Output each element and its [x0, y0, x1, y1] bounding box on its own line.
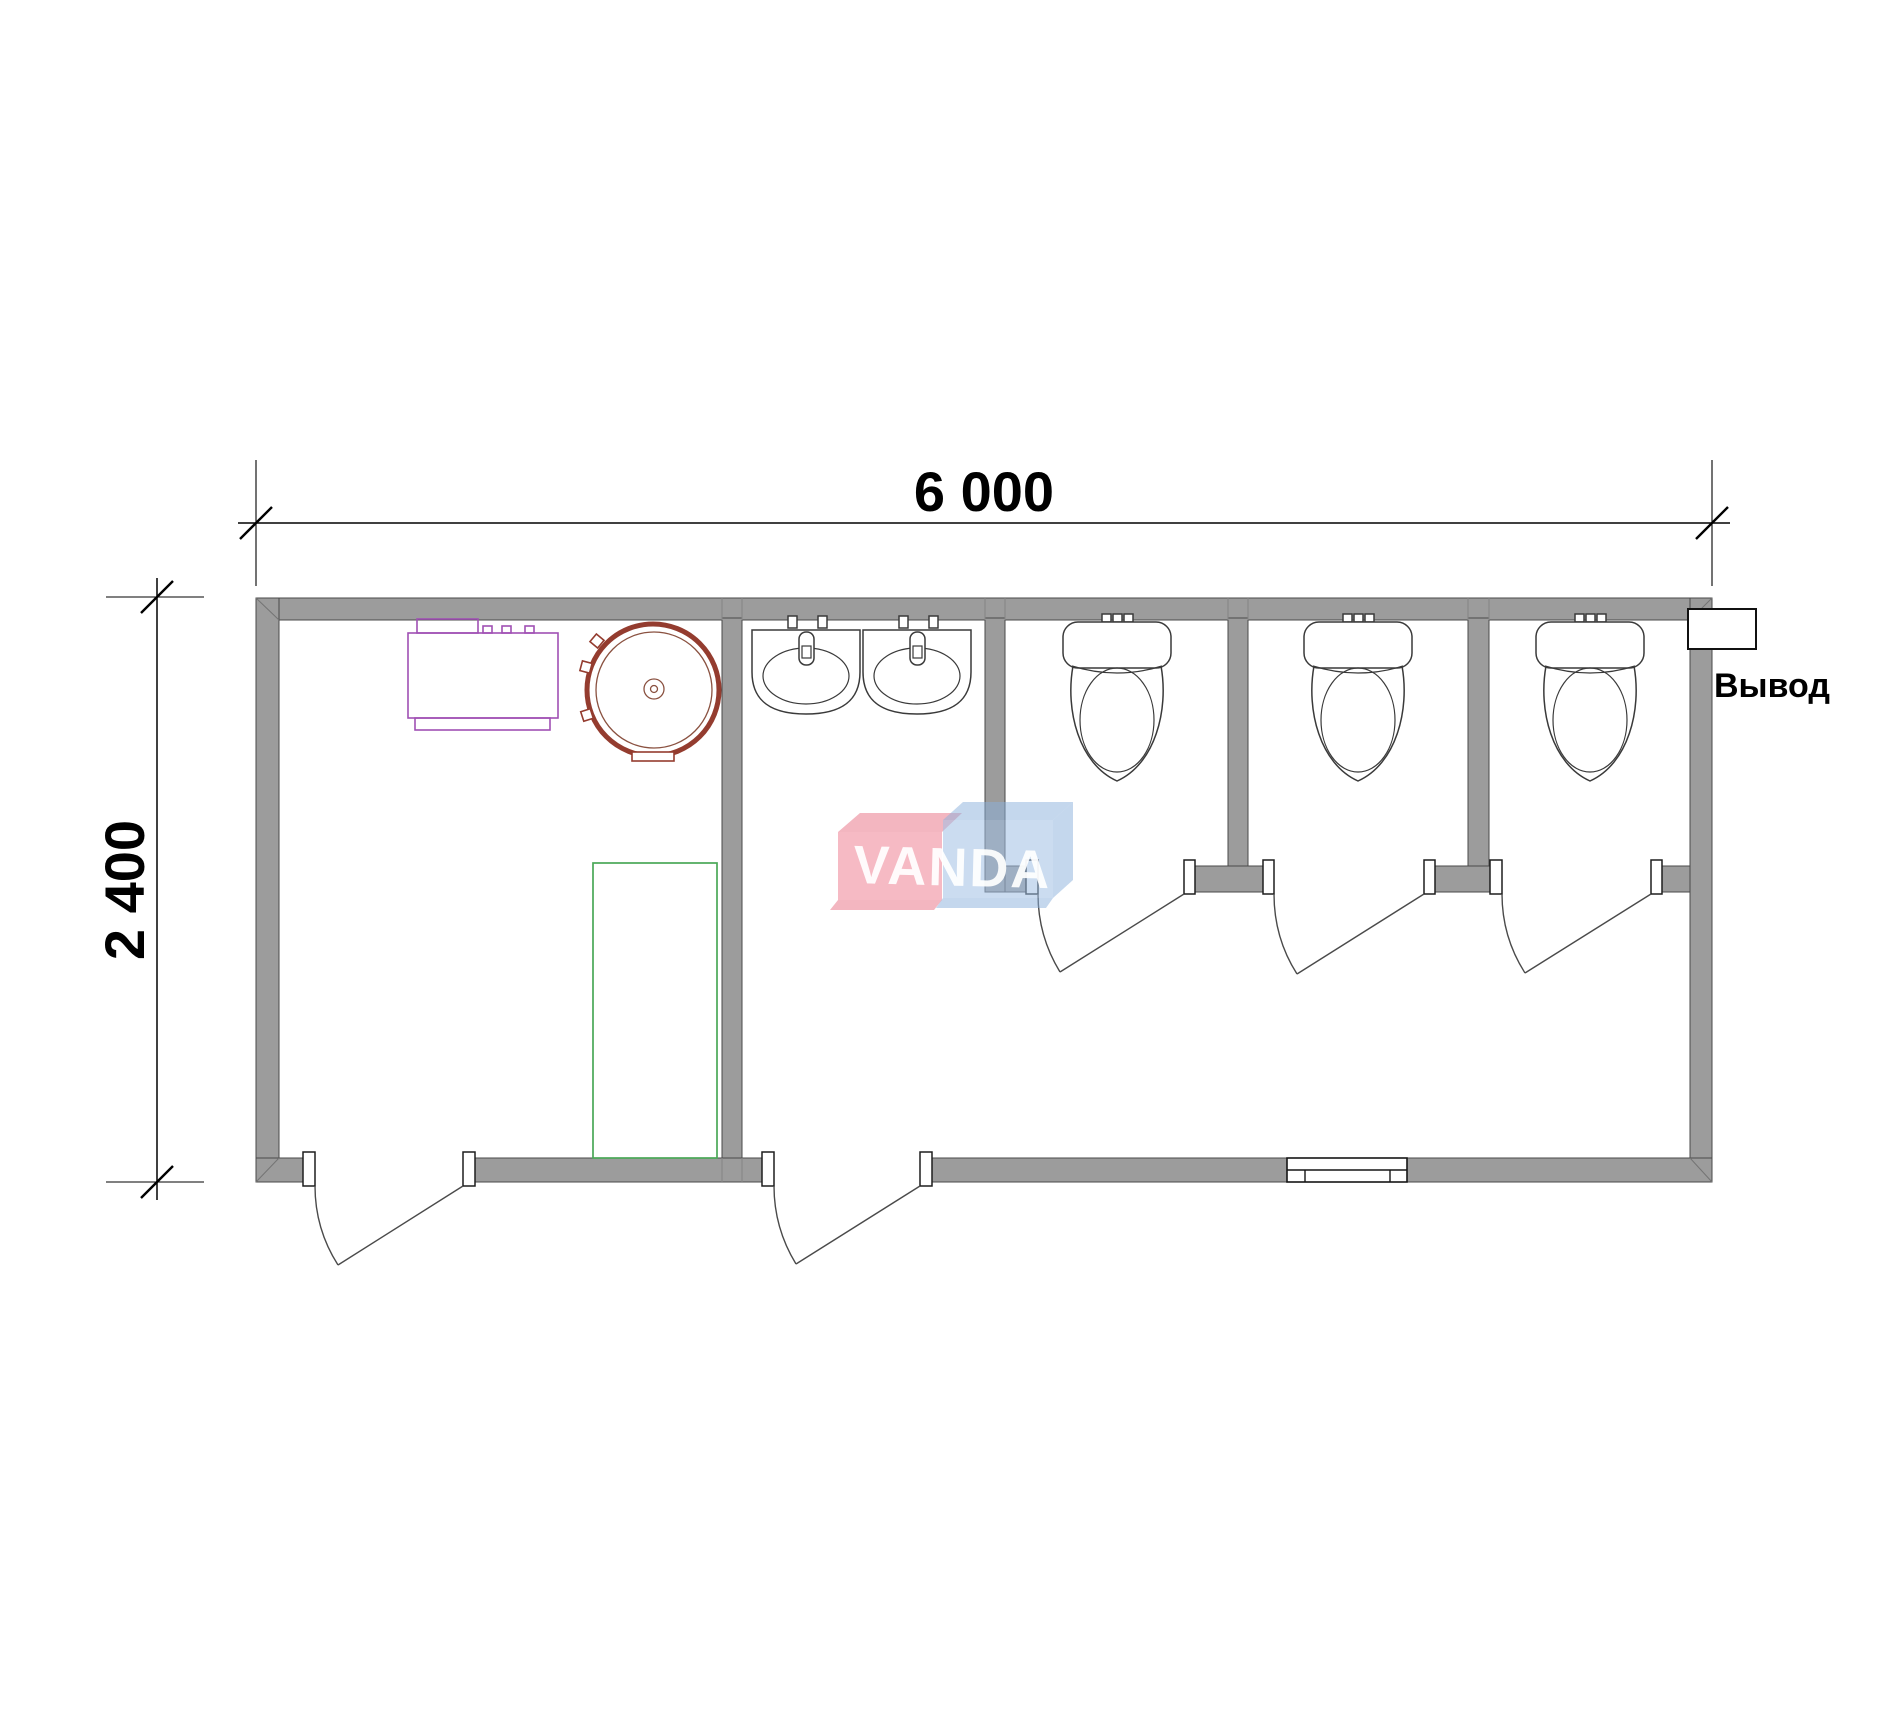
door-stall-2 — [1274, 894, 1424, 974]
watermark-blue-top — [943, 802, 1073, 820]
wall-right — [1690, 598, 1712, 1182]
toilet-3 — [1536, 614, 1644, 781]
water-heater — [580, 624, 719, 761]
dimension-width-label: 6 000 — [914, 460, 1054, 523]
watermark-pink-bottom — [830, 900, 942, 910]
stall-partition-2 — [1468, 618, 1489, 866]
door-stall-3 — [1502, 894, 1651, 973]
cabinet-unit — [408, 619, 558, 730]
sink-2 — [863, 616, 971, 714]
stall-front-stub-1 — [1195, 866, 1263, 892]
wall-bottom-seg3 — [932, 1158, 1287, 1182]
door-exterior-left — [315, 1186, 463, 1265]
wall-bottom-seg1 — [256, 1158, 303, 1182]
toilet-1 — [1063, 614, 1171, 781]
dimension-height: 2 400 — [93, 578, 204, 1200]
sink-1 — [752, 616, 860, 714]
wall-interior-a — [722, 618, 742, 1158]
floor-plan-page: 6 000 2 400 — [0, 0, 1902, 1717]
toilet-2 — [1304, 614, 1412, 781]
window — [1287, 1158, 1407, 1182]
stall-partition-1 — [1228, 618, 1248, 866]
shower-tray — [593, 863, 717, 1158]
door-exterior-washroom — [774, 1186, 920, 1264]
stall-front-stub-3 — [1662, 866, 1690, 892]
stall-front-stub-2 — [1435, 866, 1490, 892]
wall-bottom-seg2 — [475, 1158, 762, 1182]
wall-top — [256, 598, 1712, 620]
watermark: VANDA — [830, 802, 1073, 910]
door-stall-1 — [1038, 894, 1184, 972]
dimension-width: 6 000 — [238, 460, 1730, 586]
wall-bottom-seg4 — [1407, 1158, 1712, 1182]
wall-left — [256, 598, 279, 1182]
outlet-box — [1688, 609, 1756, 649]
dimension-height-label: 2 400 — [93, 820, 156, 960]
outlet-label: Вывод — [1714, 667, 1830, 705]
floor-plan-drawing: 6 000 2 400 — [0, 0, 1902, 1717]
watermark-text: VANDA — [853, 835, 1053, 900]
door-posts — [303, 860, 1662, 1186]
